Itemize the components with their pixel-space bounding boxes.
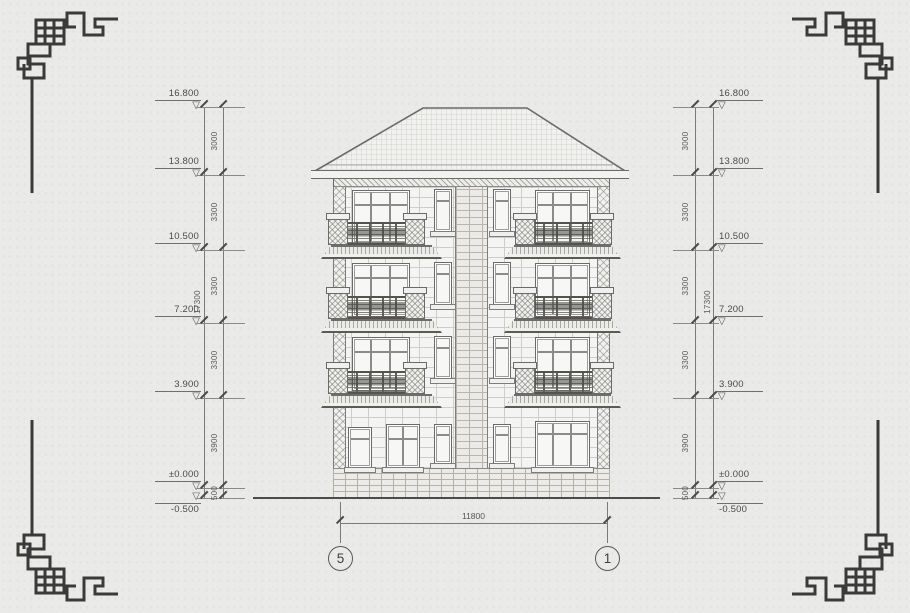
- level-triangle-icon: ▽: [718, 482, 726, 491]
- level-marker: 10.500 ▽: [717, 231, 763, 244]
- balcony-pillar: [328, 288, 348, 319]
- segment-dimension-value: 3300: [210, 266, 222, 306]
- level-label: ±0.000: [155, 469, 201, 480]
- segment-dimension-value: 3900: [210, 423, 222, 463]
- axis-bubble-1: 1: [595, 546, 620, 571]
- stair-window-3f-left: [434, 262, 452, 305]
- level-triangle-icon: ▽: [718, 317, 726, 326]
- corner-fret-ornament-top-left: [0, 0, 130, 200]
- elevation-drawing-sheet: 16.800 ▽ 13.800 ▽ 10.500 ▽ 7.200 ▽ 3.900…: [0, 0, 910, 613]
- segment-dimension-value: 3300: [681, 340, 693, 380]
- stair-window-2f-right: [493, 336, 511, 379]
- segment-dimension-value: 3000: [681, 121, 693, 161]
- balcony-pillar: [515, 363, 535, 394]
- level-marker: 13.800 ▽: [155, 156, 201, 169]
- dimension-tick: [673, 488, 719, 489]
- balcony-pillar: [405, 363, 425, 394]
- balcony-awning-3f-left: [321, 319, 442, 333]
- axis-bubble-5: 5: [328, 546, 353, 571]
- balcony-pillar: [515, 214, 535, 245]
- balcony-awning-4f-left: [321, 245, 442, 259]
- total-height-value: 17300: [193, 282, 205, 322]
- level-triangle-icon: ▽: [718, 101, 726, 110]
- level-triangle-icon: ▽: [192, 492, 200, 501]
- balcony-pillar: [515, 288, 535, 319]
- stair-window-4f-left: [434, 189, 452, 232]
- level-marker: 10.500 ▽: [155, 231, 201, 244]
- level-marker: 7.200 ▽: [717, 304, 763, 317]
- segment-dimension-value: 3300: [681, 192, 693, 232]
- level-marker: -0.500 ▽: [717, 502, 763, 515]
- level-label: 7.200: [717, 304, 763, 315]
- segment-dimension-value: 3300: [210, 340, 222, 380]
- segment-dimension-value: 3300: [681, 266, 693, 306]
- level-label: -0.500: [717, 504, 763, 515]
- level-label: 16.800: [717, 88, 763, 99]
- level-label: 16.800: [155, 88, 201, 99]
- dimension-tick: [197, 250, 245, 251]
- dimension-tick: [197, 107, 245, 108]
- balcony-pillar: [592, 363, 612, 394]
- balcony-pillar: [328, 363, 348, 394]
- balcony-awning-4f-right: [504, 245, 621, 259]
- level-label: 10.500: [717, 231, 763, 242]
- total-height-value: 17300: [703, 282, 715, 322]
- level-triangle-icon: ▽: [192, 101, 200, 110]
- level-marker: -0.500 ▽: [155, 502, 201, 515]
- balcony-pillar: [592, 214, 612, 245]
- level-triangle-icon: ▽: [718, 244, 726, 253]
- level-label: 13.800: [717, 156, 763, 167]
- level-label: -0.500: [155, 504, 201, 515]
- dimension-tick: [197, 323, 245, 324]
- dimension-tick: [197, 175, 245, 176]
- level-triangle-icon: ▽: [192, 169, 200, 178]
- level-triangle-icon: ▽: [718, 392, 726, 401]
- level-triangle-icon: ▽: [192, 244, 200, 253]
- level-label: 10.500: [155, 231, 201, 242]
- stair-window-2f-left: [434, 336, 452, 379]
- ground-line: [253, 497, 660, 499]
- segment-dimension-value: 3300: [210, 192, 222, 232]
- dimension-tick: [673, 323, 719, 324]
- width-dimension-line: [340, 523, 607, 524]
- stair-window-1f-left: [434, 424, 452, 464]
- axis-number: 1: [604, 551, 612, 566]
- segment-dimension-value: 500: [210, 473, 222, 513]
- level-marker: 16.800 ▽: [717, 88, 763, 101]
- dimension-tick: [197, 398, 245, 399]
- stair-window-1f-right: [493, 424, 511, 464]
- balcony-awning-2f-right: [504, 394, 621, 408]
- level-triangle-icon: ▽: [718, 169, 726, 178]
- stairwell-brick-pier: [455, 187, 488, 498]
- segment-dimension-line: [695, 107, 696, 498]
- balcony-pillar: [405, 214, 425, 245]
- balcony-awning-2f-left: [321, 394, 442, 408]
- width-dimension-value: 11800: [340, 511, 607, 521]
- balcony-pillar: [405, 288, 425, 319]
- window-1f-left: [386, 424, 420, 468]
- balcony-awning-3f-right: [504, 319, 621, 333]
- segment-dimension-value: 500: [681, 473, 693, 513]
- dimension-tick: [673, 250, 719, 251]
- segment-dimension-value: 3000: [210, 121, 222, 161]
- balcony-pillar: [328, 214, 348, 245]
- eave-soffit-band: [334, 179, 609, 187]
- dimension-tick: [673, 398, 719, 399]
- corner-fret-ornament-bottom-left: [0, 413, 130, 613]
- level-label: 3.900: [717, 379, 763, 390]
- level-marker: ±0.000 ▽: [155, 469, 201, 482]
- level-label: ±0.000: [717, 469, 763, 480]
- level-marker: 3.900 ▽: [717, 379, 763, 392]
- dimension-tick: [673, 498, 719, 499]
- stair-window-4f-right: [493, 189, 511, 232]
- window-1f-right: [535, 421, 590, 468]
- level-triangle-icon: ▽: [192, 392, 200, 401]
- level-marker: ±0.000 ▽: [717, 469, 763, 482]
- level-label: 13.800: [155, 156, 201, 167]
- window-1f-left-small: [348, 427, 372, 468]
- level-triangle-icon: ▽: [192, 482, 200, 491]
- corner-fret-ornament-top-right: [780, 0, 910, 200]
- eave-fascia: [311, 170, 629, 179]
- level-label: 3.900: [155, 379, 201, 390]
- stair-window-3f-right: [493, 262, 511, 305]
- balcony-pillar: [592, 288, 612, 319]
- dimension-tick: [673, 175, 719, 176]
- level-marker: 3.900 ▽: [155, 379, 201, 392]
- extension-line: [607, 502, 608, 543]
- axis-number: 5: [337, 551, 345, 566]
- level-marker: 16.800 ▽: [155, 88, 201, 101]
- corner-fret-ornament-bottom-right: [780, 413, 910, 613]
- segment-dimension-value: 3900: [681, 423, 693, 463]
- level-triangle-icon: ▽: [718, 492, 726, 501]
- level-marker: 13.800 ▽: [717, 156, 763, 169]
- dimension-tick: [673, 107, 719, 108]
- segment-dimension-line: [223, 107, 224, 498]
